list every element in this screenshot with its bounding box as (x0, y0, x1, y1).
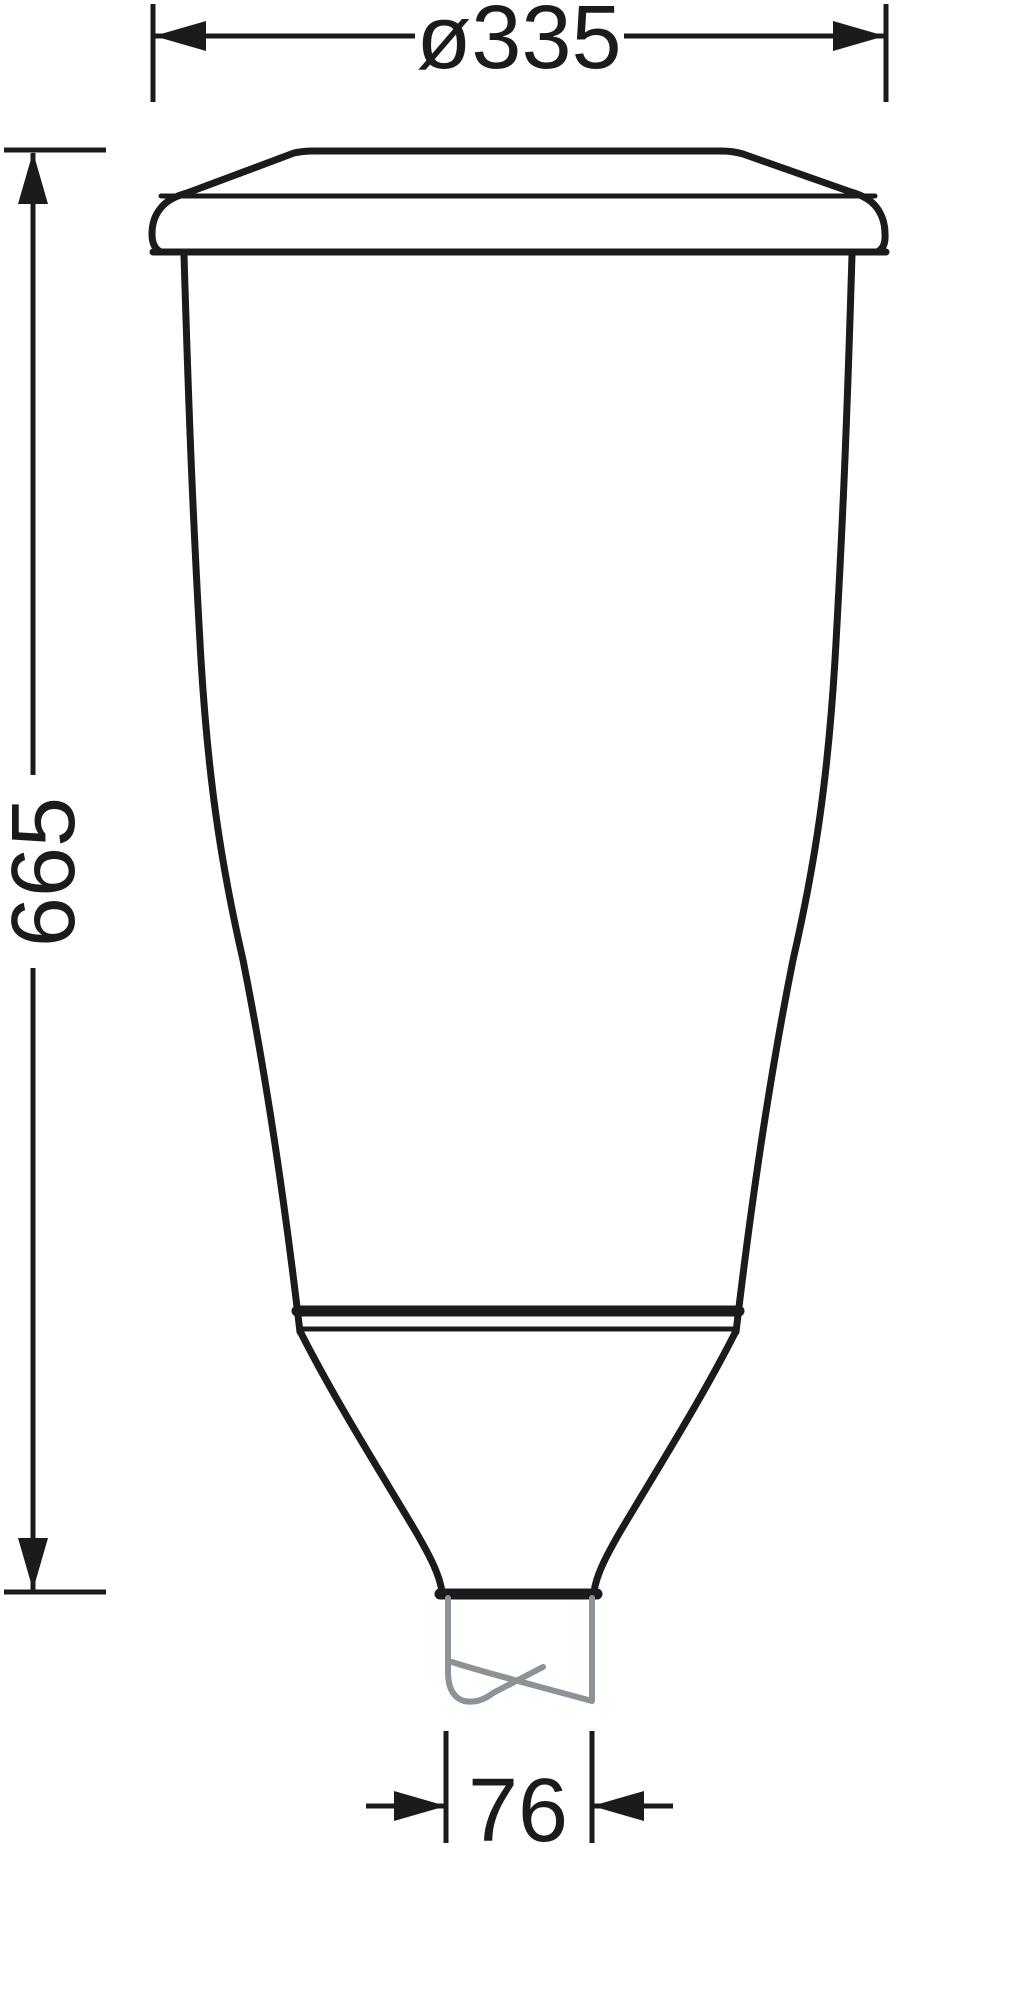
body-right-edge (736, 255, 852, 1332)
dimension-label-top-width: ø335 (416, 0, 621, 88)
dimension-top-width: ø335 (153, 0, 886, 102)
dimension-bottom-width: 76 (366, 1731, 673, 1861)
arrowhead-left (154, 21, 206, 51)
dimension-left-height: 665 (0, 150, 106, 1592)
arrowhead-inward-left (592, 1791, 644, 1821)
pole-break-line (452, 1662, 592, 1701)
funnel-left-edge (301, 1333, 442, 1592)
arrowhead-down (18, 1538, 48, 1590)
arrowhead-right (833, 21, 885, 51)
luminaire-outline (152, 151, 886, 1594)
pole-spigot (448, 1598, 592, 1702)
dimension-label-left-height: 665 (0, 797, 94, 947)
arrowhead-inward-right (394, 1791, 446, 1821)
luminaire-dimension-drawing: ø335 665 (0, 0, 1009, 2000)
body-left-edge (184, 255, 300, 1332)
dimension-label-bottom-width: 76 (468, 1761, 568, 1861)
cap-outline (152, 151, 885, 252)
funnel-right-edge (594, 1333, 735, 1592)
arrowhead-up (18, 152, 48, 204)
technical-drawing-page: ø335 665 (0, 0, 1009, 2000)
